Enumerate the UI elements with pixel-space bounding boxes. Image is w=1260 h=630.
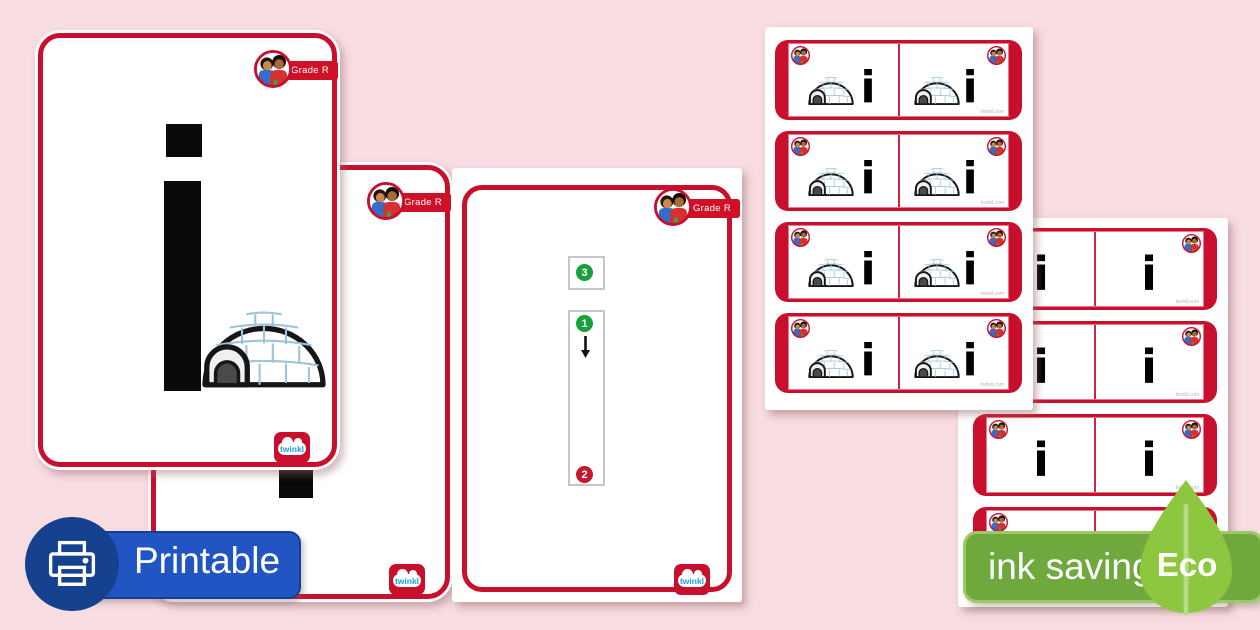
igloo-icon	[912, 162, 962, 197]
flashcard-letter: i	[857, 64, 879, 112]
strip-cells: i i twinkl.com	[788, 316, 1009, 390]
strip-cells: i i twinkl.com	[788, 43, 1009, 117]
letter-i-dot	[166, 124, 202, 157]
igloo-icon	[912, 344, 962, 379]
kids-avatar-icon	[987, 46, 1006, 65]
eco-label: Eco	[1146, 546, 1228, 584]
kids-avatar-icon	[791, 228, 810, 247]
formation-step-2: 2	[576, 466, 593, 483]
kids-avatar-icon	[254, 50, 292, 88]
watermark-text: twinkl.com	[981, 382, 1004, 388]
flashcard-letter: i	[987, 436, 1095, 484]
resource-preview: Grade R twinkl Grade R 3 1 2 twinkl	[0, 0, 1260, 630]
formation-step-1: 1	[576, 315, 593, 332]
watermark-text: twinkl.com	[1176, 392, 1199, 398]
cell-divider	[898, 226, 900, 298]
flashcard-letter: i	[959, 155, 981, 203]
twinkl-logo: twinkl	[389, 564, 425, 595]
watermark-text: twinkl.com	[981, 109, 1004, 115]
igloo-icon	[806, 253, 856, 288]
watermark-text: twinkl.com	[981, 291, 1004, 297]
strip-cells: i i twinkl.com	[788, 225, 1009, 299]
kids-avatar-icon	[654, 188, 692, 226]
twinkl-logo-text: twinkl	[274, 444, 310, 454]
igloo-icon	[912, 253, 962, 288]
kids-avatar-icon	[987, 137, 1006, 156]
picture-flashcard-strip: i i twinkl.com	[775, 131, 1022, 211]
grade-badge: Grade R	[333, 182, 453, 222]
twinkl-logo: twinkl	[674, 564, 710, 595]
watermark-text: twinkl.com	[981, 200, 1004, 206]
flashcard-letter: i	[857, 246, 879, 294]
cell-divider	[898, 44, 900, 116]
formation-step-3: 3	[576, 264, 593, 281]
letter-i-stem	[164, 181, 201, 391]
igloo-icon	[806, 162, 856, 197]
kids-avatar-icon	[791, 46, 810, 65]
igloo-icon	[806, 71, 856, 106]
flashcard-letter: i	[959, 64, 981, 112]
grade-badge: Grade R	[622, 188, 742, 228]
picture-flashcard-strip: i i twinkl.com	[775, 313, 1022, 393]
flashcard-letter: i	[959, 337, 981, 385]
printable-icon-circle	[25, 517, 119, 611]
cell-divider	[898, 135, 900, 207]
twinkl-logo-text: twinkl	[674, 576, 710, 586]
kids-avatar-icon	[987, 228, 1006, 247]
kids-avatar-icon	[367, 182, 405, 220]
flashcard-letter: i	[857, 337, 879, 385]
igloo-illustration	[198, 292, 330, 393]
flashcard-page-igloo: Grade R twinkl	[35, 30, 340, 470]
twinkl-logo-text: twinkl	[389, 576, 425, 586]
picture-flashcard-strip: i i twinkl.com	[775, 40, 1022, 120]
flashcard-letter: i	[857, 155, 879, 203]
printer-icon	[45, 537, 99, 591]
kids-avatar-icon	[791, 137, 810, 156]
igloo-icon	[912, 71, 962, 106]
cell-divider	[898, 317, 900, 389]
flashcard-letter: i	[1095, 250, 1203, 298]
igloo-icon	[806, 344, 856, 379]
grade-label: Grade R	[684, 199, 740, 218]
picture-flashcard-strips-sheet: i i twinkl.com i i twinkl.com	[765, 27, 1033, 410]
ink-saving-label: ink saving	[966, 546, 1153, 588]
letter-formation-page: Grade R 3 1 2 twinkl	[452, 168, 742, 602]
watermark-text: twinkl.com	[1176, 299, 1199, 305]
picture-flashcard-strip: i i twinkl.com	[775, 222, 1022, 302]
kids-avatar-icon	[987, 319, 1006, 338]
flashcard-letter: i	[959, 246, 981, 294]
twinkl-logo: twinkl	[274, 432, 310, 463]
grade-badge: Grade R	[220, 50, 340, 90]
flashcard-letter: i	[1095, 343, 1203, 391]
kids-avatar-icon	[791, 319, 810, 338]
printable-label: Printable	[134, 540, 280, 582]
arrow-down-icon	[579, 335, 592, 359]
strip-cells: i i twinkl.com	[788, 134, 1009, 208]
